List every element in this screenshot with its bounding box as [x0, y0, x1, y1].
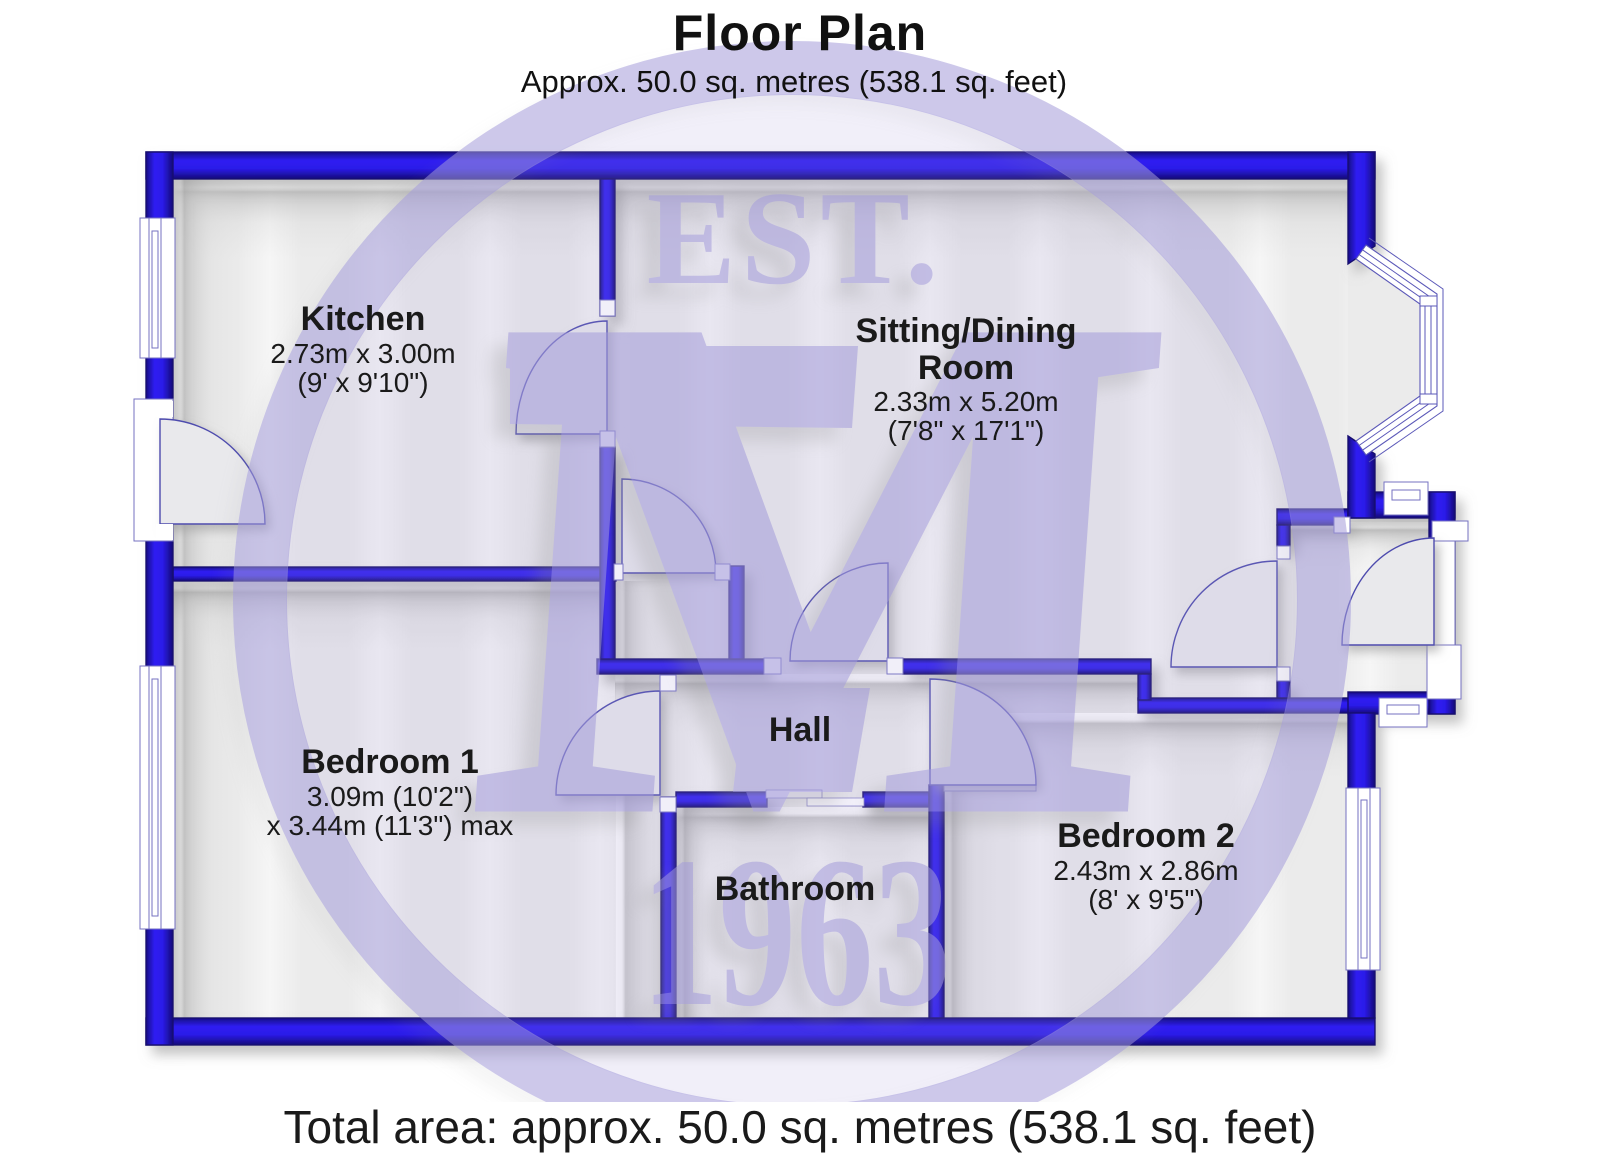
svg-text:Hall: Hall [769, 711, 831, 749]
svg-text:Room: Room [918, 349, 1014, 387]
svg-text:2.43m x 2.86m: 2.43m x 2.86m [1053, 855, 1238, 886]
svg-text:3.09m (10'2"): 3.09m (10'2") [307, 781, 473, 812]
svg-text:Bedroom 1: Bedroom 1 [301, 743, 479, 781]
svg-text:1963: 1963 [641, 812, 951, 1051]
svg-text:2.33m x 5.20m: 2.33m x 5.20m [873, 386, 1058, 417]
svg-text:2.73m x 3.00m: 2.73m x 3.00m [270, 338, 455, 369]
svg-text:(7'8" x 17'1"): (7'8" x 17'1") [888, 415, 1045, 446]
svg-text:x 3.44m (11'3") max: x 3.44m (11'3") max [267, 810, 514, 841]
svg-text:Sitting/Dining: Sitting/Dining [856, 312, 1077, 350]
svg-text:(9' x 9'10"): (9' x 9'10") [297, 367, 428, 398]
svg-text:Floor Plan: Floor Plan [673, 5, 927, 61]
svg-text:Kitchen: Kitchen [301, 300, 426, 338]
svg-text:Bathroom: Bathroom [715, 870, 876, 908]
svg-text:Approx. 50.0 sq. metres (538.1: Approx. 50.0 sq. metres (538.1 sq. feet) [521, 64, 1067, 99]
svg-text:Total area: approx. 50.0 sq. m: Total area: approx. 50.0 sq. metres (538… [283, 1101, 1316, 1153]
svg-text:Bedroom 2: Bedroom 2 [1057, 817, 1235, 855]
svg-text:(8' x 9'5"): (8' x 9'5") [1088, 884, 1204, 915]
